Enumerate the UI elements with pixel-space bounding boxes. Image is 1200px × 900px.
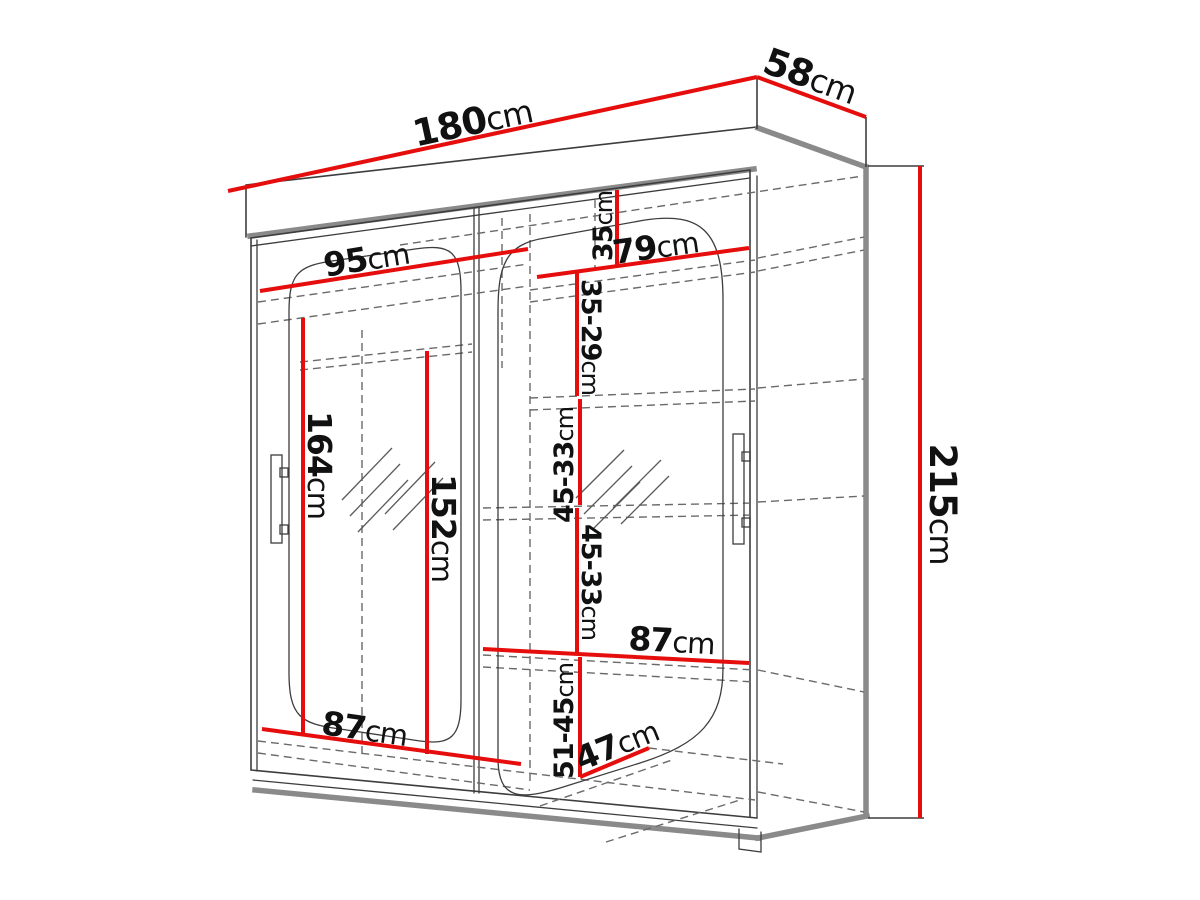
dimension-label-height-164: 164cm xyxy=(300,411,339,519)
dimension-label-35-29: 35-29cm xyxy=(575,279,606,395)
dimension-label-height-152: 152cm xyxy=(424,474,463,582)
left-top-shelf-dashed2 xyxy=(258,286,528,324)
shelf1-side-dashed2 xyxy=(758,250,864,271)
hanging-rail-dashed2 xyxy=(300,352,472,370)
shelf3-dashed2 xyxy=(483,515,755,520)
front-bottom-edge xyxy=(251,770,757,818)
mirror-glass-line xyxy=(576,450,624,498)
mirror-glass-line xyxy=(613,460,661,508)
right-door-frame xyxy=(498,218,723,795)
dimension-label-width-87-left: 87cm xyxy=(319,703,410,754)
shelf3-side-dashed xyxy=(758,496,864,502)
mirror-glass-line xyxy=(584,466,632,514)
door-handle-right xyxy=(733,434,750,544)
plinth-bottom-edge xyxy=(255,790,758,838)
dimension-label-width-95: 95cm xyxy=(321,233,412,285)
dimension-label-height-215: 215cm xyxy=(921,444,964,565)
floor-side-dashed xyxy=(758,792,864,812)
dimension-label-width-180: 180cm xyxy=(409,88,536,155)
handle-mount xyxy=(742,518,750,527)
handle-mount xyxy=(280,468,288,477)
dimension-label-depth-47: 47cm xyxy=(569,710,663,778)
crown-right-edge xyxy=(758,128,866,167)
handle-mount xyxy=(280,525,288,534)
dimension-label-45-33-upper: 45-33cm xyxy=(549,407,580,523)
dimension-extension-ticks xyxy=(757,77,924,818)
dimension-label-width-87-right: 87cm xyxy=(628,619,716,662)
mirror-glass-line xyxy=(358,480,408,532)
mirror-glass-line xyxy=(592,482,640,530)
dimension-label-width-79: 79cm xyxy=(610,221,701,272)
mirror-glass-line xyxy=(350,464,400,516)
door-handle-left xyxy=(271,455,288,543)
right-bottom-edge xyxy=(758,816,867,838)
dimension-label-51-45: 51-45cm xyxy=(549,663,580,779)
dimension-label-45-33-lower: 45-33cm xyxy=(575,524,606,640)
floor-front-dashed xyxy=(258,741,755,800)
dimension-label-height-35: 35cm xyxy=(588,191,619,261)
shelf1-side-dashed xyxy=(758,237,864,258)
shelf2-side-dashed xyxy=(758,379,864,388)
shelf4-dashed2 xyxy=(483,667,755,682)
mirror-glass-line xyxy=(342,448,392,500)
shelf2-dashed xyxy=(530,389,755,398)
dimension-label-depth-58: 58cm xyxy=(758,40,863,113)
diagram-container: 180cm 58cm 215cm 95cm 79cm 35cm 35-29cm … xyxy=(0,0,1200,900)
wardrobe-dimension-diagram: 180cm 58cm 215cm 95cm 79cm 35cm 35-29cm … xyxy=(0,0,1200,900)
shelf4-side-dashed xyxy=(758,670,864,692)
handle-mount xyxy=(742,452,750,461)
hanging-rail-dashed xyxy=(300,344,472,362)
